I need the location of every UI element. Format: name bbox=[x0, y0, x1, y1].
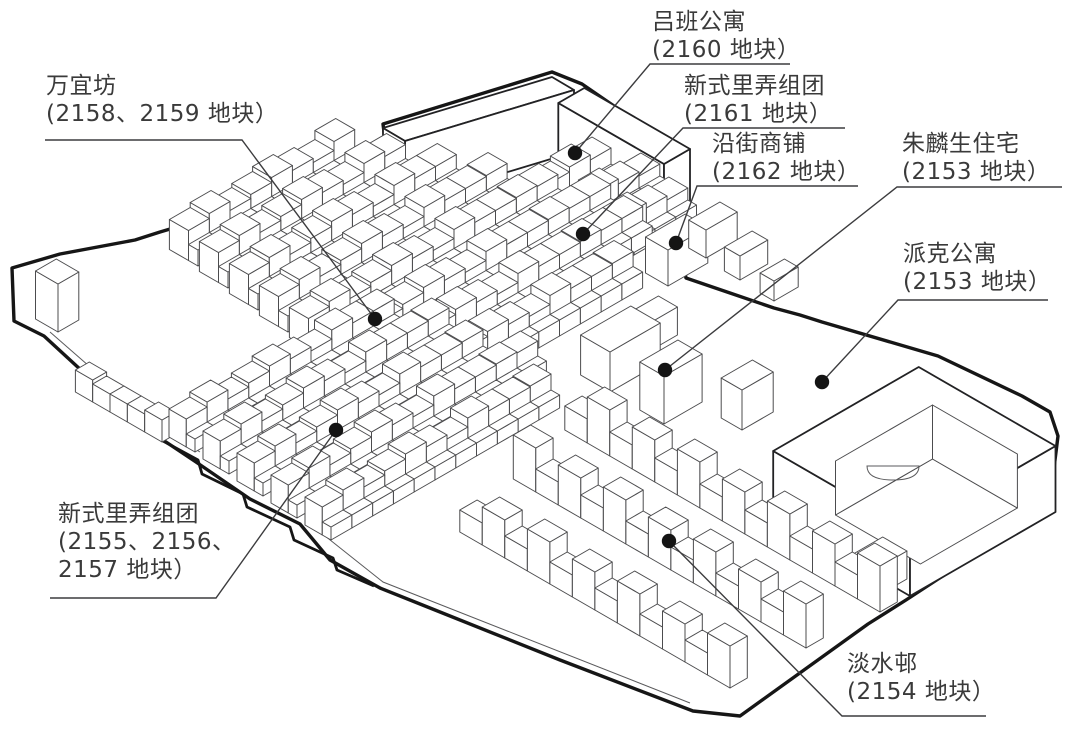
callout-text: (2158、2159 地块） bbox=[46, 100, 278, 128]
callout-wanyifang: 万宜坊 (2158、2159 地块） bbox=[46, 72, 278, 128]
callout-new-lilong-2155-2157: 新式里弄组团 (2155、2156、 2157 地块） bbox=[58, 500, 236, 584]
callout-text: 沿街商铺 bbox=[712, 130, 860, 158]
callout-text: (2161 地块） bbox=[684, 100, 832, 128]
callout-text: 淡水邨 bbox=[847, 650, 995, 678]
callout-text: 朱麟生住宅 bbox=[902, 130, 1050, 158]
callout-new-lilong-2161: 新式里弄组团 (2161 地块） bbox=[684, 72, 832, 128]
callout-text: 新式里弄组团 bbox=[58, 500, 236, 528]
callout-text: (2160 地块） bbox=[652, 36, 800, 64]
callout-zhulinsheng-house: 朱麟生住宅 (2153 地块） bbox=[902, 130, 1050, 186]
callout-danshui-village: 淡水邨 (2154 地块） bbox=[847, 650, 995, 706]
callout-text: (2153 地块） bbox=[903, 268, 1051, 296]
callout-text: 2157 地块） bbox=[58, 556, 236, 584]
callout-text: (2162 地块） bbox=[712, 158, 860, 186]
callout-text: (2154 地块） bbox=[847, 678, 995, 706]
callout-text: (2153 地块） bbox=[902, 158, 1050, 186]
callout-text: (2155、2156、 bbox=[58, 528, 236, 556]
callout-text: 吕班公寓 bbox=[652, 8, 800, 36]
axonometric-site-diagram: 吕班公寓 (2160 地块） 新式里弄组团 (2161 地块） 沿街商铺 (21… bbox=[0, 0, 1080, 731]
callout-luban-apartment: 吕班公寓 (2160 地块） bbox=[652, 8, 800, 64]
callout-text: 派克公寓 bbox=[903, 240, 1051, 268]
callout-parker-apartment: 派克公寓 (2153 地块） bbox=[903, 240, 1051, 296]
callout-text: 万宜坊 bbox=[46, 72, 278, 100]
callout-street-shops-2162: 沿街商铺 (2162 地块） bbox=[712, 130, 860, 186]
callout-text: 新式里弄组团 bbox=[684, 72, 832, 100]
